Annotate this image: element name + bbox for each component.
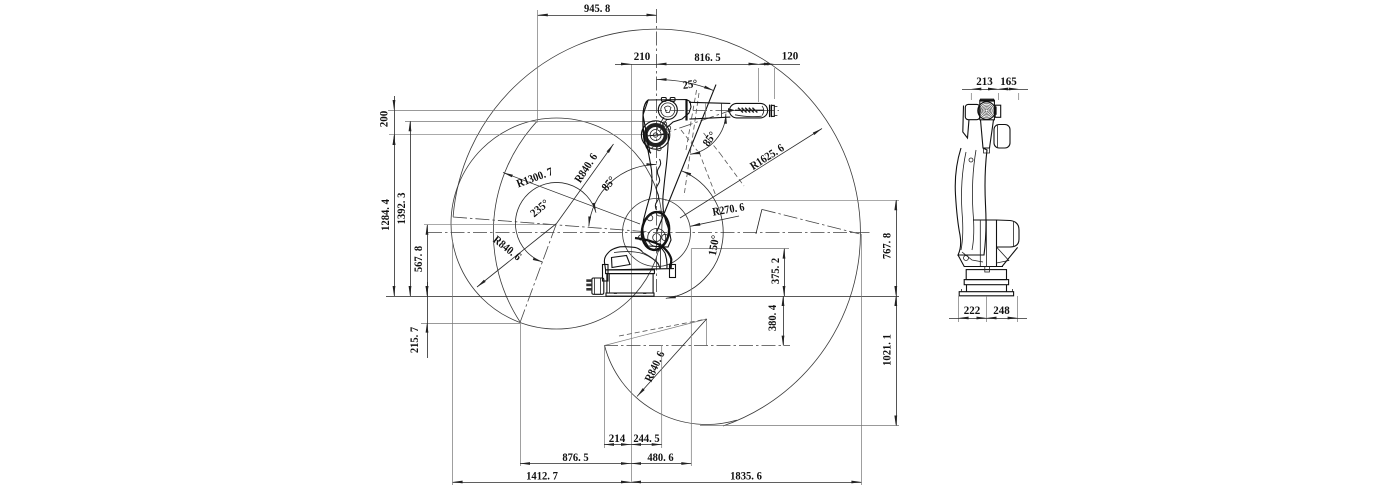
- svg-text:1412. 7: 1412. 7: [526, 471, 558, 483]
- svg-text:244. 5: 244. 5: [633, 433, 660, 445]
- svg-text:214: 214: [609, 433, 626, 445]
- svg-text:25°: 25°: [682, 78, 699, 92]
- svg-text:1284. 4: 1284. 4: [380, 199, 392, 231]
- svg-text:380. 4: 380. 4: [767, 305, 779, 332]
- svg-text:85°: 85°: [701, 129, 720, 148]
- svg-text:215. 7: 215. 7: [409, 327, 421, 354]
- svg-text:1021. 1: 1021. 1: [882, 334, 894, 366]
- svg-text:248: 248: [993, 305, 1010, 317]
- svg-text:222: 222: [964, 305, 981, 317]
- svg-text:567. 8: 567. 8: [413, 246, 425, 273]
- svg-text:R1300. 7: R1300. 7: [515, 166, 555, 191]
- svg-text:R1625. 6: R1625. 6: [748, 142, 786, 173]
- svg-text:165: 165: [1000, 76, 1017, 88]
- svg-text:945. 8: 945. 8: [584, 3, 611, 15]
- svg-text:767. 8: 767. 8: [882, 233, 894, 260]
- svg-text:375. 2: 375. 2: [770, 258, 782, 285]
- svg-text:1392. 3: 1392. 3: [396, 192, 408, 224]
- svg-text:876. 5: 876. 5: [562, 452, 589, 464]
- svg-text:120: 120: [782, 51, 799, 63]
- svg-text:200: 200: [379, 111, 391, 128]
- svg-text:480. 6: 480. 6: [647, 452, 674, 464]
- svg-text:210: 210: [634, 51, 651, 63]
- svg-text:213: 213: [976, 76, 993, 88]
- svg-text:816. 5: 816. 5: [694, 52, 721, 64]
- svg-text:1835. 6: 1835. 6: [730, 471, 762, 483]
- svg-text:235°: 235°: [528, 197, 552, 220]
